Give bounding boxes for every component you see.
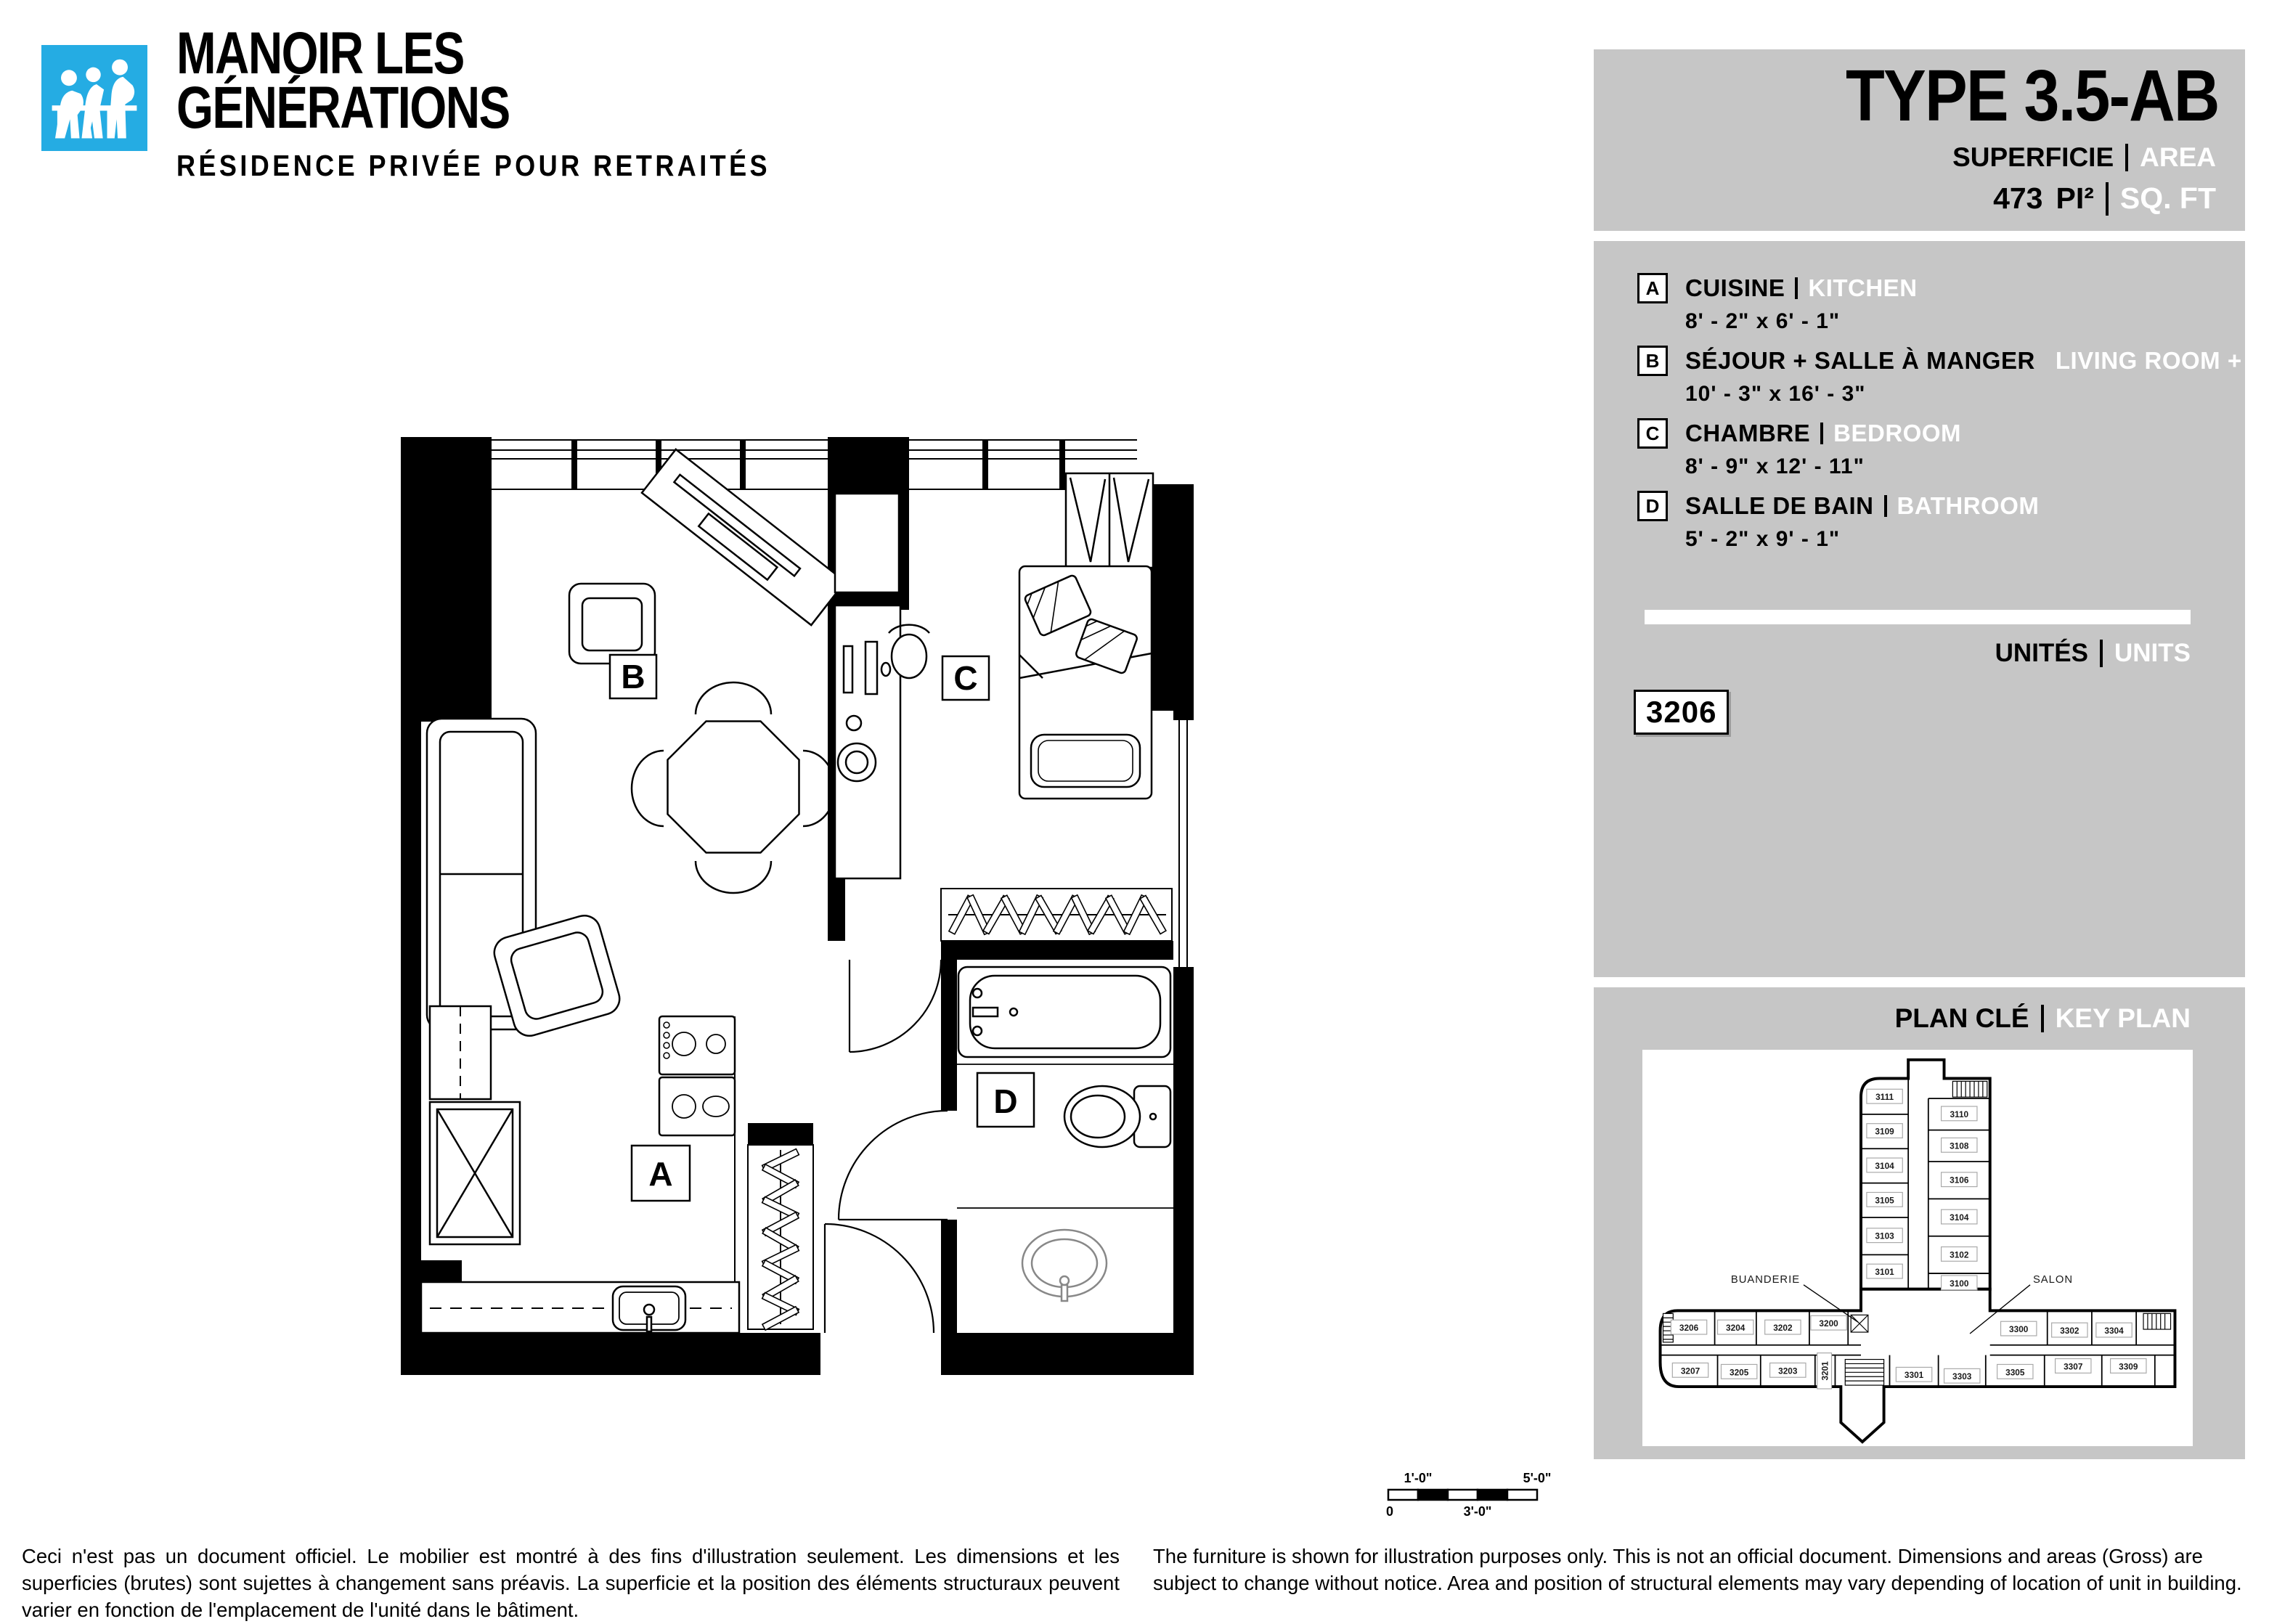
tub-tap: [973, 989, 982, 997]
floor-plan: A B C D: [401, 415, 1199, 1377]
stove: [659, 1016, 735, 1135]
bed: [1019, 566, 1152, 799]
unit-label: 3109: [1875, 1127, 1894, 1137]
room-label-kitchen: A: [632, 1146, 690, 1201]
units-heading: UNITÉS UNITS: [1995, 639, 2191, 668]
unit-label: 3300: [2009, 1324, 2029, 1334]
svg-text:A: A: [648, 1155, 672, 1193]
brand-wordmark: MANOIR LES GÉNÉRATIONS RÉSIDENCE PRIVÉE …: [176, 26, 852, 183]
tub-spout: [973, 1008, 998, 1016]
disclaimer-english: The furniture is shown for illustration …: [1153, 1543, 2249, 1597]
unit-label: 3207: [1681, 1366, 1700, 1376]
unit-label: 3302: [2060, 1326, 2079, 1336]
unit-label: 3110: [1950, 1109, 1968, 1119]
room-letter-badge: D: [1637, 491, 1668, 521]
scale-label-5ft: 5'-0": [1523, 1471, 1552, 1485]
unit-label: 3201: [1820, 1361, 1830, 1381]
units-label-fr: UNITÉS: [1995, 639, 2088, 668]
room-name-en: KITCHEN: [1808, 274, 1917, 302]
room-dimensions: 8' - 2" x 6' - 1": [1685, 309, 2216, 334]
tub-tap: [973, 1027, 982, 1035]
legend-row-bedroom: C CHAMBRE BEDROOM: [1637, 418, 2216, 449]
room-label-bathroom: D: [977, 1073, 1034, 1127]
room-dimensions: 10' - 3" x 16' - 3": [1685, 382, 2216, 407]
unit-label: 3104: [1875, 1161, 1894, 1171]
lounge-annotation: SALON: [2033, 1274, 2073, 1286]
bedroom-door: [850, 960, 941, 1052]
unit-label: 3303: [1952, 1371, 1972, 1382]
separator-bar: [2100, 640, 2103, 667]
scale-label-3ft: 3'-0": [1464, 1504, 1492, 1519]
room-letter-badge: B: [1637, 346, 1668, 376]
room-name-en: LIVING ROOM + DINING: [2056, 347, 2269, 375]
unit-label: 3301: [1905, 1370, 1924, 1380]
separator-bar: [1884, 495, 1887, 517]
mouse-icon: [881, 663, 890, 676]
dining-chair: [696, 682, 771, 714]
unit-label: 3111: [1875, 1092, 1894, 1102]
separator-bar: [2041, 1005, 2044, 1032]
unit-label: 3101: [1875, 1267, 1894, 1277]
unit-label: 3103: [1875, 1231, 1894, 1241]
room-name-fr: SALLE DE BAIN: [1685, 492, 1874, 520]
brand-tagline: RÉSIDENCE PRIVÉE POUR RETRAITÉS: [176, 149, 770, 183]
generations-figures: [52, 60, 137, 139]
laundry-annotation: BUANDERIE: [1731, 1274, 1800, 1286]
key-plan-drawing: BUANDERIE SALON 3111 3109 3104 3105 3103…: [1642, 1050, 2193, 1446]
unit-label: 3102: [1950, 1249, 1969, 1260]
units-label-en: UNITS: [2114, 639, 2191, 668]
room-name-fr: CUISINE: [1685, 274, 1785, 302]
room-dimensions: 8' - 9" x 12' - 11": [1685, 454, 2216, 479]
bathtub: [958, 967, 1170, 1057]
desk-cup: [847, 716, 861, 730]
refrigerator: [430, 1102, 520, 1244]
scale-label-1ft: 1'-0": [1404, 1471, 1433, 1485]
dining-chair: [696, 861, 771, 893]
separator-bar: [1820, 423, 1823, 444]
unit-label: 3204: [1726, 1323, 1745, 1333]
bedroom-closet: [941, 889, 1172, 941]
disclaimer-french: Ceci n'est pas un document officiel. Le …: [22, 1543, 1120, 1624]
room-label-living: B: [610, 655, 656, 698]
room-label-bedroom: C: [942, 656, 989, 700]
svg-text:D: D: [993, 1082, 1017, 1120]
room-name-fr: CHAMBRE: [1685, 420, 1810, 447]
superficie-row: SUPERFICIE AREA: [1952, 142, 2216, 173]
unit-label: 3200: [1819, 1318, 1838, 1329]
toilet: [1064, 1086, 1170, 1147]
coat-closet: [748, 1145, 813, 1330]
unit-label: 3104: [1950, 1212, 1969, 1223]
unit-label: 3108: [1950, 1141, 1969, 1151]
room-dimensions: 5' - 2" x 9' - 1": [1685, 527, 2216, 552]
separator-bar: [2125, 144, 2128, 171]
unit-label: 3309: [2119, 1361, 2138, 1371]
keyboard-icon: [865, 642, 877, 694]
brand-line-2: GÉNÉRATIONS: [176, 81, 717, 135]
unit-type-title: TYPE 3.5-AB: [1846, 60, 2219, 132]
unit-label: 3305: [2005, 1367, 2025, 1377]
unit-label: 3205: [1730, 1367, 1749, 1377]
entry-door: [825, 1224, 934, 1333]
separator-bar: [1795, 277, 1798, 299]
area-unit-fr: PI²: [2056, 181, 2093, 216]
unit-label: 3100: [1950, 1278, 1969, 1289]
white-divider: [1645, 610, 2191, 624]
scale-bar: 1'-0" 5'-0" 0 3'-0": [1378, 1465, 1552, 1526]
area-value: 473: [1993, 181, 2042, 216]
dining-chair: [632, 751, 664, 826]
bathroom-sink: [1022, 1230, 1107, 1301]
room-legend-panel: A CUISINE KITCHEN 8' - 2" x 6' - 1" B SÉ…: [1594, 241, 2245, 977]
key-plan-heading: PLAN CLÉ KEY PLAN: [1895, 1003, 2191, 1034]
superficie-label-en: AREA: [2140, 142, 2216, 173]
unit-label: 3206: [1679, 1323, 1699, 1333]
unit-label: 3106: [1950, 1175, 1969, 1186]
kitchen-cabinet: [430, 1006, 491, 1099]
armchair: [569, 584, 655, 664]
key-plan-panel: PLAN CLÉ KEY PLAN: [1594, 987, 2245, 1459]
brand-line-1: MANOIR LES: [176, 26, 717, 81]
key-plan-label-en: KEY PLAN: [2056, 1003, 2191, 1034]
room-name-fr: SÉJOUR + SALLE À MANGER: [1685, 347, 2035, 375]
legend-row-living: B SÉJOUR + SALLE À MANGER LIVING ROOM + …: [1637, 346, 2216, 376]
tub-drain: [1010, 1008, 1017, 1016]
unit-label: 3202: [1773, 1323, 1793, 1333]
legend-row-bathroom: D SALLE DE BAIN BATHROOM: [1637, 491, 2216, 521]
room-letter-badge: C: [1637, 418, 1668, 449]
monitor-icon: [844, 646, 852, 693]
unit-label: 3105: [1875, 1195, 1894, 1205]
key-plan-label-fr: PLAN CLÉ: [1895, 1003, 2029, 1034]
wardrobe: [1066, 473, 1153, 568]
svg-text:C: C: [953, 659, 977, 697]
scale-label-zero: 0: [1386, 1504, 1393, 1519]
bathroom-door: [839, 1111, 948, 1220]
kitchen-sink: [613, 1286, 685, 1331]
pillow: [1031, 735, 1140, 787]
separator-bar: [2106, 182, 2109, 216]
svg-text:B: B: [621, 658, 645, 695]
room-letter-badge: A: [1637, 273, 1668, 303]
dining-table: [632, 682, 835, 893]
room-legend-list: A CUISINE KITCHEN 8' - 2" x 6' - 1" B SÉ…: [1637, 273, 2216, 563]
room-name-en: BEDROOM: [1833, 420, 1961, 447]
unit-number-badge: 3206: [1634, 690, 1729, 735]
area-row: 473 PI² SQ. FT: [1993, 181, 2216, 216]
area-unit-en: SQ. FT: [2120, 181, 2216, 216]
unit-label: 3304: [2104, 1326, 2124, 1336]
unit-label: 3307: [2064, 1361, 2083, 1371]
side-window: [1173, 720, 1194, 967]
room-name-en: BATHROOM: [1897, 492, 2040, 520]
desk: [835, 605, 900, 878]
superficie-label-fr: SUPERFICIE: [1952, 142, 2114, 173]
brand-logo-icon: [41, 45, 147, 151]
desk-shelf: [835, 494, 899, 592]
type-title-panel: TYPE 3.5-AB SUPERFICIE AREA 473 PI² SQ. …: [1594, 49, 2245, 231]
key-plan-drawing-box: BUANDERIE SALON 3111 3109 3104 3105 3103…: [1642, 1050, 2193, 1446]
unit-label: 3203: [1778, 1366, 1798, 1376]
legend-row-kitchen: A CUISINE KITCHEN: [1637, 273, 2216, 303]
